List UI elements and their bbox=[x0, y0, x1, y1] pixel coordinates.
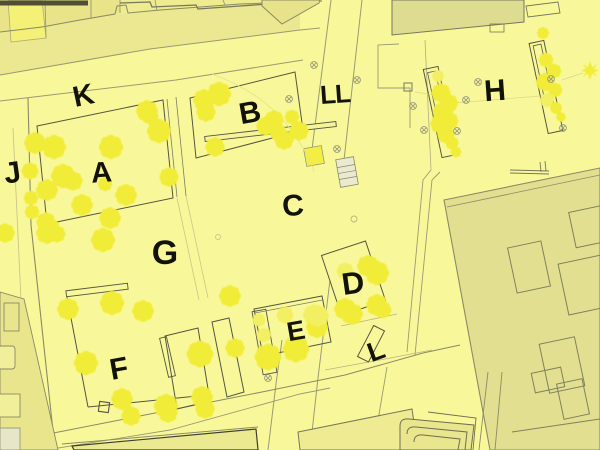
svg-text:G: G bbox=[152, 234, 178, 272]
svg-text:C: C bbox=[281, 189, 305, 223]
svg-text:A: A bbox=[90, 156, 113, 189]
svg-text:LL: LL bbox=[319, 78, 352, 110]
svg-text:H: H bbox=[483, 74, 507, 108]
